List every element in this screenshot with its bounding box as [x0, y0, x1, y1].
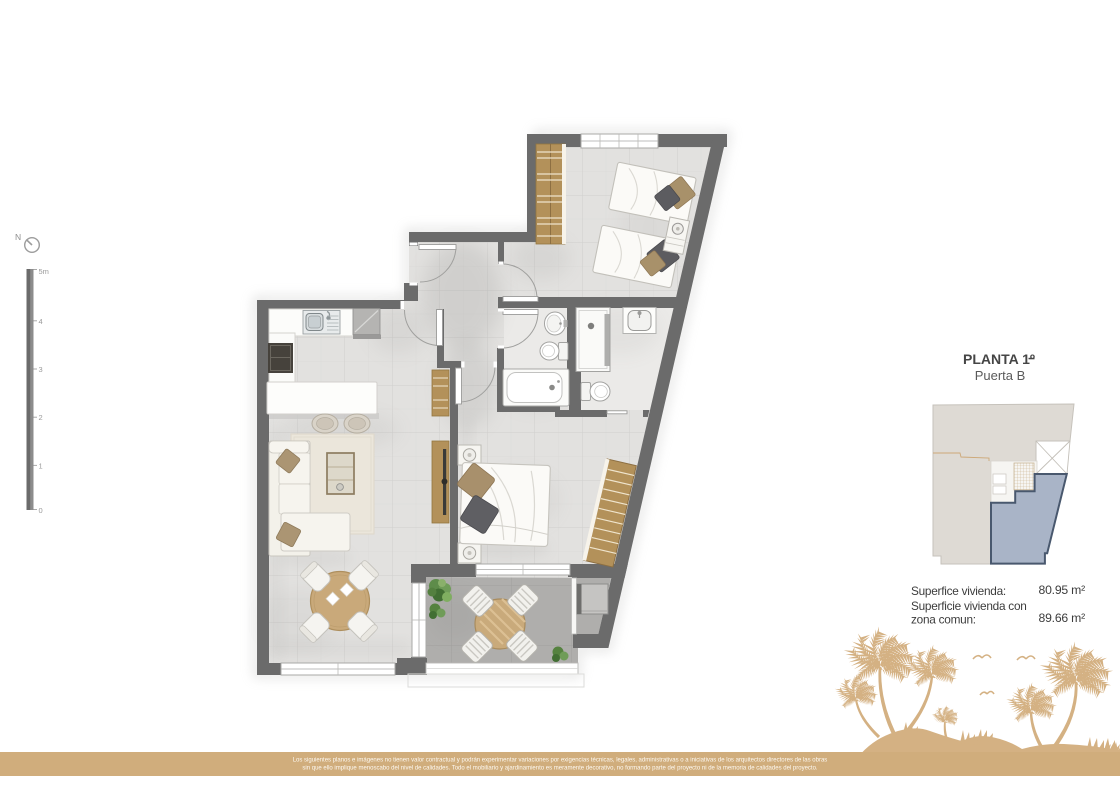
svg-text:2: 2: [39, 413, 43, 422]
svg-text:Puerta B: Puerta B: [975, 368, 1026, 383]
svg-text:zona comun:: zona comun:: [911, 613, 976, 627]
svg-text:89.66 m²: 89.66 m²: [1039, 611, 1086, 625]
svg-text:5m: 5m: [39, 267, 49, 276]
svg-text:4: 4: [39, 317, 43, 326]
svg-text:N: N: [15, 232, 21, 242]
svg-text:0: 0: [39, 506, 43, 515]
svg-text:3: 3: [39, 365, 43, 374]
svg-text:Los siguientes planos e imágen: Los siguientes planos e imágenes no tien…: [293, 758, 828, 764]
svg-text:1: 1: [39, 462, 43, 471]
svg-text:PLANTA 1º: PLANTA 1º: [963, 351, 1035, 367]
svg-text:80.95 m²: 80.95 m²: [1039, 583, 1086, 597]
svg-text:Superfice vivienda:: Superfice vivienda:: [911, 584, 1006, 598]
svg-text:sin que ello implique menoscab: sin que ello implique menoscabo del nive…: [302, 766, 818, 772]
svg-text:Superficie vivienda con: Superficie vivienda con: [911, 599, 1027, 613]
